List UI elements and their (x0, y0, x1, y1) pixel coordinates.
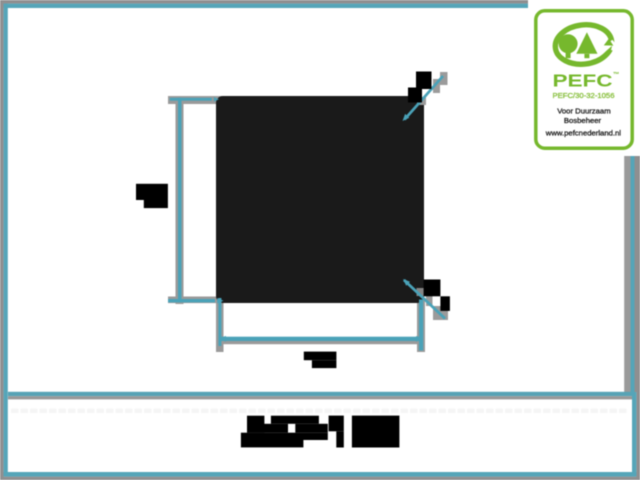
svg-text:www.pefcnederland.nl: www.pefcnederland.nl (545, 129, 622, 138)
svg-text:PEFC/30-32-1056: PEFC/30-32-1056 (553, 91, 615, 100)
svg-text:Bosbeheer: Bosbeheer (564, 116, 602, 125)
svg-text:Voor Duurzaam: Voor Duurzaam (557, 107, 610, 116)
svg-text:™: ™ (613, 72, 620, 79)
svg-text:PEFC: PEFC (553, 71, 613, 91)
